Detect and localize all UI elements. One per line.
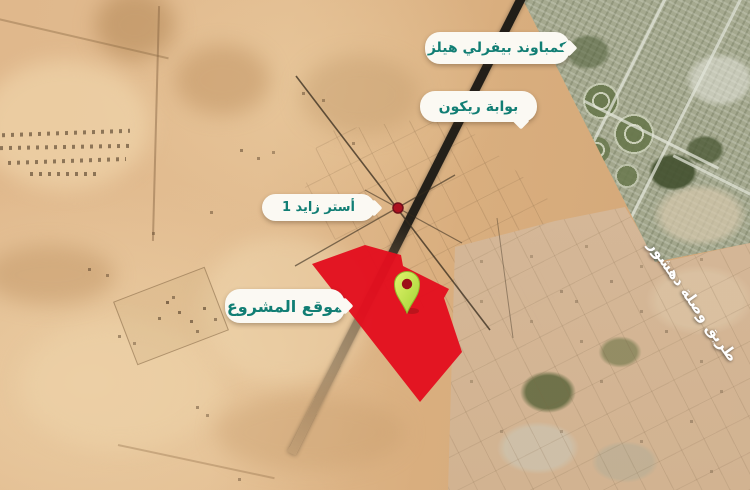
junction-dot: [393, 203, 403, 213]
rural-road: [497, 218, 513, 338]
map-canvas: طريق وصلة دهشور كمباوند بيفرلي هيلز بواب…: [0, 0, 750, 490]
label-beverly-hills-text: كمباوند بيفرلي هيلز: [428, 40, 567, 56]
label-beverly-hills-compound: كمباوند بيفرلي هيلز: [425, 32, 570, 64]
map-pin-hole: [402, 279, 412, 289]
label-aster-zayed: أستر زايد 1: [262, 194, 375, 221]
label-project-location: موقع المشروع: [225, 289, 345, 323]
label-project-location-text: موقع المشروع: [227, 297, 343, 316]
map-overlay: [0, 0, 750, 490]
project-site-polygon: [312, 245, 462, 402]
label-rekon-gate-text: بوابة ريكون: [439, 99, 519, 115]
label-rekon-gate: بوابة ريكون: [420, 91, 537, 122]
label-aster-zayed-text: أستر زايد 1: [282, 200, 355, 215]
